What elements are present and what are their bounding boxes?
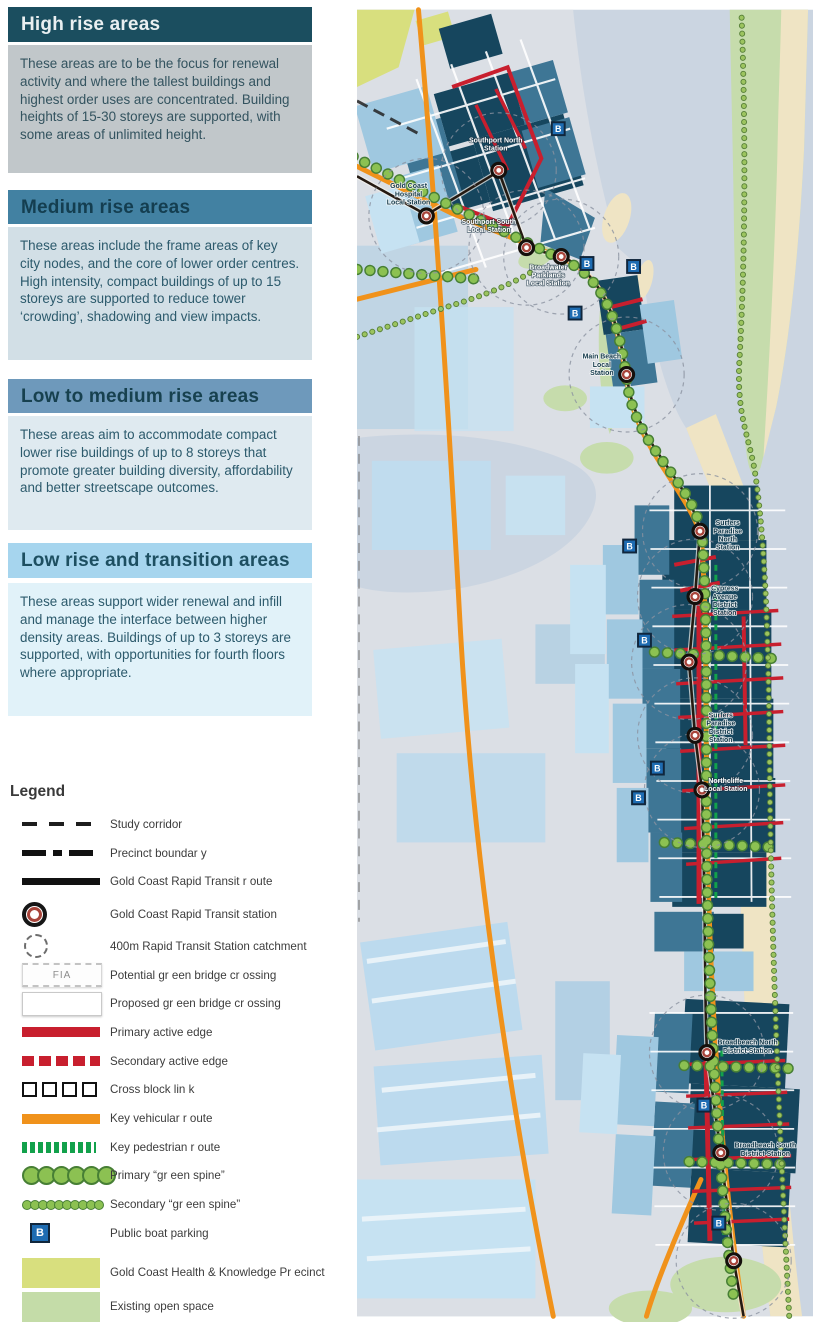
transit-station-marker bbox=[554, 250, 568, 264]
legend-label: Secondary “gr een spine” bbox=[110, 1198, 240, 1211]
proposed-green-bridge-icon bbox=[22, 992, 102, 1016]
legend-label: Key pedestrian r oute bbox=[110, 1141, 220, 1154]
transit-station-marker bbox=[714, 1146, 728, 1160]
station-label: SurfersParadiseDistrictStation bbox=[706, 713, 735, 744]
high-rise-areas-description: These areas are to be the focus for rene… bbox=[8, 45, 312, 173]
legend: Study corridor Precinct boundar y Gold C… bbox=[8, 810, 348, 1324]
boat-parking-label: B bbox=[630, 262, 637, 272]
legend-row: Precinct boundar y bbox=[8, 839, 348, 868]
legend-label: Precinct boundar y bbox=[110, 847, 207, 860]
transit-station-marker bbox=[693, 524, 707, 538]
legend-label: Secondary active edge bbox=[110, 1055, 228, 1068]
station-label: CypressAvenueDistrictStation bbox=[711, 586, 738, 617]
legend-row: Proposed gr een bridge cr ossing bbox=[8, 989, 348, 1018]
transit-station-marker bbox=[688, 728, 702, 742]
boat-parking-marker: B bbox=[638, 634, 651, 647]
legend-row: Primary active edge bbox=[8, 1018, 348, 1047]
potential-green-bridge-icon: FIA bbox=[22, 963, 102, 987]
precinct-boundary-icon bbox=[22, 850, 98, 856]
study-corridor-icon bbox=[22, 822, 94, 826]
secondary-green-spine-icon bbox=[22, 1200, 104, 1210]
transit-station-marker bbox=[620, 368, 634, 382]
legend-label: Gold Coast Rapid Transit r oute bbox=[110, 875, 272, 888]
boat-parking-label: B bbox=[701, 1100, 708, 1110]
boat-parking-label: B bbox=[555, 124, 562, 134]
boat-parking-label: B bbox=[716, 1218, 723, 1228]
transit-station-marker bbox=[492, 163, 506, 177]
transit-route-icon bbox=[22, 878, 100, 885]
legend-label: Key vehicular r oute bbox=[110, 1112, 212, 1125]
legend-row: Secondary active edge bbox=[8, 1047, 348, 1076]
transit-station-marker bbox=[727, 1254, 741, 1268]
legend-label: 400m Rapid Transit Station catchment bbox=[110, 940, 307, 953]
boat-parking-label: B bbox=[654, 763, 661, 773]
legend-row: Key pedestrian r oute bbox=[8, 1133, 348, 1162]
station-catchment-icon bbox=[24, 934, 48, 958]
key-pedestrian-route-icon bbox=[22, 1142, 96, 1153]
medium-rise-areas-header: Medium rise areas bbox=[8, 190, 312, 224]
transit-station-marker bbox=[682, 655, 696, 669]
legend-title: Legend bbox=[10, 783, 65, 801]
legend-row: Key vehicular r oute bbox=[8, 1104, 348, 1133]
legend-label: Primary active edge bbox=[110, 1026, 212, 1039]
legend-label: Gold Coast Health & Knowledge Pr ecinct bbox=[110, 1266, 325, 1279]
legend-label: Primary “gr een spine” bbox=[110, 1169, 225, 1182]
boat-parking-marker: B bbox=[569, 307, 582, 320]
legend-label: Existing open space bbox=[110, 1300, 214, 1313]
boat-parking-marker: B bbox=[712, 1217, 725, 1230]
legend-label: Gold Coast Rapid Transit station bbox=[110, 908, 277, 921]
boat-parking-label: B bbox=[572, 308, 579, 318]
legend-row: B Public boat parking bbox=[8, 1219, 348, 1248]
legend-row: Cross block lin k bbox=[8, 1076, 348, 1105]
boat-parking-marker: B bbox=[627, 260, 640, 273]
legend-label: Proposed gr een bridge cr ossing bbox=[110, 997, 281, 1010]
public-boat-parking-icon: B bbox=[30, 1223, 50, 1243]
boat-parking-marker: B bbox=[632, 791, 645, 804]
station-label: BroadwaterParklandsLocal Station bbox=[527, 264, 570, 287]
station-label: NorthcliffeLocal Station bbox=[704, 778, 747, 793]
station-label: Broadbeach NorthDistrict Station bbox=[717, 1040, 777, 1055]
legend-row: Gold Coast Rapid Transit r oute bbox=[8, 867, 348, 896]
boat-parking-marker: B bbox=[698, 1099, 711, 1112]
legend-row: Gold Coast Health & Knowledge Pr ecinct bbox=[8, 1256, 348, 1290]
secondary-active-edge-icon bbox=[22, 1056, 100, 1066]
medium-rise-areas-description: These areas include the frame areas of k… bbox=[8, 227, 312, 360]
boat-parking-label: B bbox=[635, 793, 642, 803]
legend-row: Study corridor bbox=[8, 810, 348, 839]
legend-label: Cross block lin k bbox=[110, 1083, 194, 1096]
legend-row: FIA Potential gr een bridge cr ossing bbox=[8, 961, 348, 990]
boat-parking-marker: B bbox=[651, 762, 664, 775]
planning-document-page: High rise areas These areas are to be th… bbox=[0, 0, 817, 1327]
boat-parking-label: B bbox=[584, 259, 591, 269]
legend-row: Existing open space bbox=[8, 1290, 348, 1324]
transit-station-marker bbox=[419, 209, 433, 223]
low-to-medium-rise-areas-header: Low to medium rise areas bbox=[8, 379, 312, 413]
legend-row: 400m Rapid Transit Station catchment bbox=[8, 932, 348, 961]
key-vehicular-route-icon bbox=[22, 1114, 100, 1124]
legend-label: Public boat parking bbox=[110, 1227, 209, 1240]
boat-parking-label: B bbox=[626, 541, 633, 551]
transit-station-icon bbox=[22, 902, 47, 927]
boat-parking-label: B bbox=[641, 636, 648, 646]
legend-label: Study corridor bbox=[110, 818, 182, 831]
primary-active-edge-icon bbox=[22, 1027, 100, 1037]
low-rise-transition-areas-header: Low rise and transition areas bbox=[8, 543, 312, 578]
station-label: Southport SouthLocal Station bbox=[462, 219, 517, 234]
boat-parking-marker: B bbox=[581, 257, 594, 270]
transit-station-marker bbox=[520, 241, 534, 255]
health-knowledge-precinct-icon bbox=[22, 1258, 100, 1288]
transit-station-marker bbox=[700, 1046, 714, 1060]
legend-row: Secondary “gr een spine” bbox=[8, 1190, 348, 1219]
primary-green-spine-icon bbox=[22, 1166, 116, 1185]
cross-block-link-icon bbox=[22, 1082, 97, 1097]
station-label: Broadbeach SouthDistrict Station bbox=[735, 1143, 797, 1158]
boat-parking-marker: B bbox=[623, 540, 636, 553]
legend-row: Gold Coast Rapid Transit station bbox=[8, 896, 348, 932]
existing-open-space-icon bbox=[22, 1292, 100, 1322]
transit-station-marker bbox=[688, 590, 702, 604]
legend-label: Potential gr een bridge cr ossing bbox=[110, 969, 276, 982]
low-to-medium-rise-areas-description: These areas aim to accommodate compact l… bbox=[8, 416, 312, 530]
high-rise-areas-header: High rise areas bbox=[8, 7, 312, 42]
corridor-map: BBBBBBBBBBGold CoastHospitalLocal Statio… bbox=[357, 4, 813, 1322]
boat-parking-marker: B bbox=[552, 122, 565, 135]
legend-row: Primary “gr een spine” bbox=[8, 1162, 348, 1191]
low-rise-transition-areas-description: These areas support wider renewal and in… bbox=[8, 583, 312, 716]
